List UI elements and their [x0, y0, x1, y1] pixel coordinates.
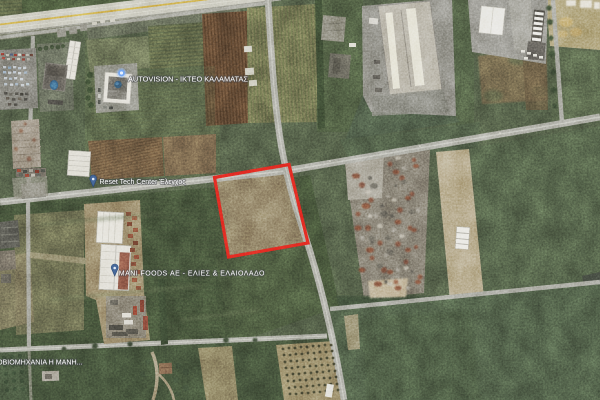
svg-text:AUTOVISION - ΙΚΤΕΟ ΚΑΛΑΜΑΤΑΣ: AUTOVISION - ΙΚΤΕΟ ΚΑΛΑΜΑΤΑΣ — [128, 75, 248, 84]
svg-text:ΟΒΙΟΜΗΧΑΝΙΑ Η ΜΑΝΗ...: ΟΒΙΟΜΗΧΑΝΙΑ Η ΜΑΝΗ... — [0, 359, 83, 367]
svg-text:Reset Tech Center Έλεγχος: Reset Tech Center Έλεγχος — [100, 179, 187, 186]
svg-text:MANI FOODS ΑΕ - ΕΛΙΕΣ & ΕΛΑΙΟ: MANI FOODS ΑΕ - ΕΛΙΕΣ & ΕΛΑΙΟΛΑΔΟ — [119, 271, 265, 278]
